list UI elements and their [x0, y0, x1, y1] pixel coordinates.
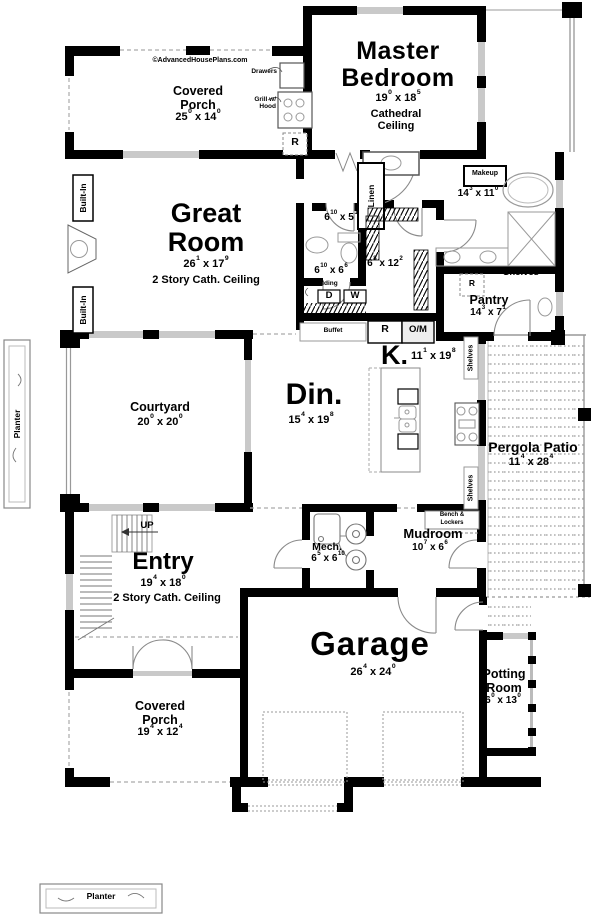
grill-icon [278, 92, 312, 128]
range-icon [455, 403, 479, 445]
potting-room-dims: 60 x 130 [485, 696, 521, 707]
bench-lockers-label: Bench &Lockers [440, 512, 464, 527]
closet-dims: 68 x 122 [367, 259, 403, 270]
covered-porch-bottom-dims: 194 x 124 [137, 727, 182, 739]
great-ceiling-note: 2 Story Cath. Ceiling [152, 275, 260, 287]
dining-label: Din. [286, 379, 343, 411]
stairs-up-label: UP [140, 521, 153, 531]
bath-dims: 143 x 110 [458, 189, 499, 200]
island-sink [399, 406, 416, 419]
kitchen-island [369, 368, 420, 472]
mudroom-dims: 107 x 66 [412, 543, 448, 554]
pantry-sink-icon [538, 298, 552, 316]
furnace-icon [314, 514, 340, 544]
covered-porch-top-dims: 250 x 140 [175, 112, 220, 124]
pantry-dims: 143 x 71 [470, 308, 506, 319]
dining-dims: 154 x 198 [288, 415, 333, 427]
kitchen-dims: 111 x 198 [411, 350, 456, 362]
mudroom-label: Mudroom [403, 527, 462, 541]
entry-ceiling-note: 2 Story Cath. Ceiling [113, 593, 221, 605]
covered-porch-bottom-label: CoveredPorch [135, 700, 185, 727]
water-heater-icon [346, 524, 366, 544]
mech-dims: 65 x 610 [311, 554, 345, 565]
sink-icon [306, 237, 328, 253]
pergola-patio-dims: 114 x 284 [509, 457, 554, 469]
linen-label: Linen [366, 185, 376, 208]
entry-dims: 194 x 180 [140, 578, 185, 590]
dryer-label: D [326, 291, 333, 301]
shelves-label-closet: Shelves [503, 268, 539, 278]
sink-icon [480, 251, 496, 263]
laundry-dims: 610 x 66 [314, 266, 348, 277]
drawers-label: Drawers [235, 68, 277, 75]
pergola-floor [486, 330, 591, 632]
outdoor-fridge-label: R [291, 137, 299, 148]
tub-icon [503, 173, 553, 207]
garage-label: Garage [310, 626, 430, 662]
folding-label: Folding [314, 280, 337, 287]
master-bedroom-dims: 190 x 185 [375, 93, 420, 105]
great-room-dims: 261 x 179 [183, 259, 228, 271]
buffet-label: Buffet [324, 327, 343, 334]
garage-doors [248, 712, 463, 811]
drawers-box [280, 63, 304, 88]
water-softener-icon [346, 550, 366, 570]
washer-label: W [351, 291, 360, 301]
pantry-fridge-label: R [469, 279, 475, 288]
built-in-label-1: Built-In [78, 183, 88, 212]
pergola-patio-label: Pergola Patio [488, 440, 577, 455]
fridge-label: R [381, 324, 389, 335]
entry-label: Entry [132, 549, 193, 575]
master-ceiling-note: CathedralCeiling [371, 109, 422, 133]
bifold-doors [336, 153, 357, 171]
folding-counter [303, 303, 366, 313]
planter-left-label: Planter [12, 410, 22, 439]
covered-porch-top-label: CoveredPorch [173, 85, 223, 112]
oven-micro-label: O/M [409, 325, 427, 335]
master-bedroom-label: MasterBedroom [341, 38, 454, 92]
toilet-icon [338, 233, 360, 242]
great-room-label: GreatRoom [168, 199, 245, 257]
garage-dims: 264 x 240 [350, 667, 395, 679]
courtyard-dims: 200 x 200 [137, 417, 182, 429]
built-in-label-2: Built-In [78, 295, 88, 324]
sink-icon [444, 251, 460, 263]
dishwasher-box-2 [398, 434, 418, 449]
master-bath-fixtures [436, 166, 555, 266]
shelves-label-patio-2: Shelves [468, 475, 475, 501]
kitchen-label: K.111 x 198 [381, 340, 456, 371]
floor-plan: ©AdvancedHousePlans.com CoveredPorch 250… [0, 0, 600, 918]
shelves-label-patio-1: Shelves [468, 345, 475, 371]
grill-hood-label: Grill w/Hood [235, 96, 276, 111]
planter-bottom-label: Planter [87, 892, 116, 901]
potting-room-label: PottingRoom [482, 668, 525, 695]
powder-dims: 610 x 51 [324, 213, 358, 224]
makeup-label: Makeup [472, 170, 498, 178]
dishwasher-box [398, 389, 418, 404]
brand-watermark: ©AdvancedHousePlans.com [152, 57, 247, 65]
powder-fixtures [306, 233, 360, 263]
fireplace-icon [68, 225, 96, 273]
vanity-counter [436, 248, 508, 266]
